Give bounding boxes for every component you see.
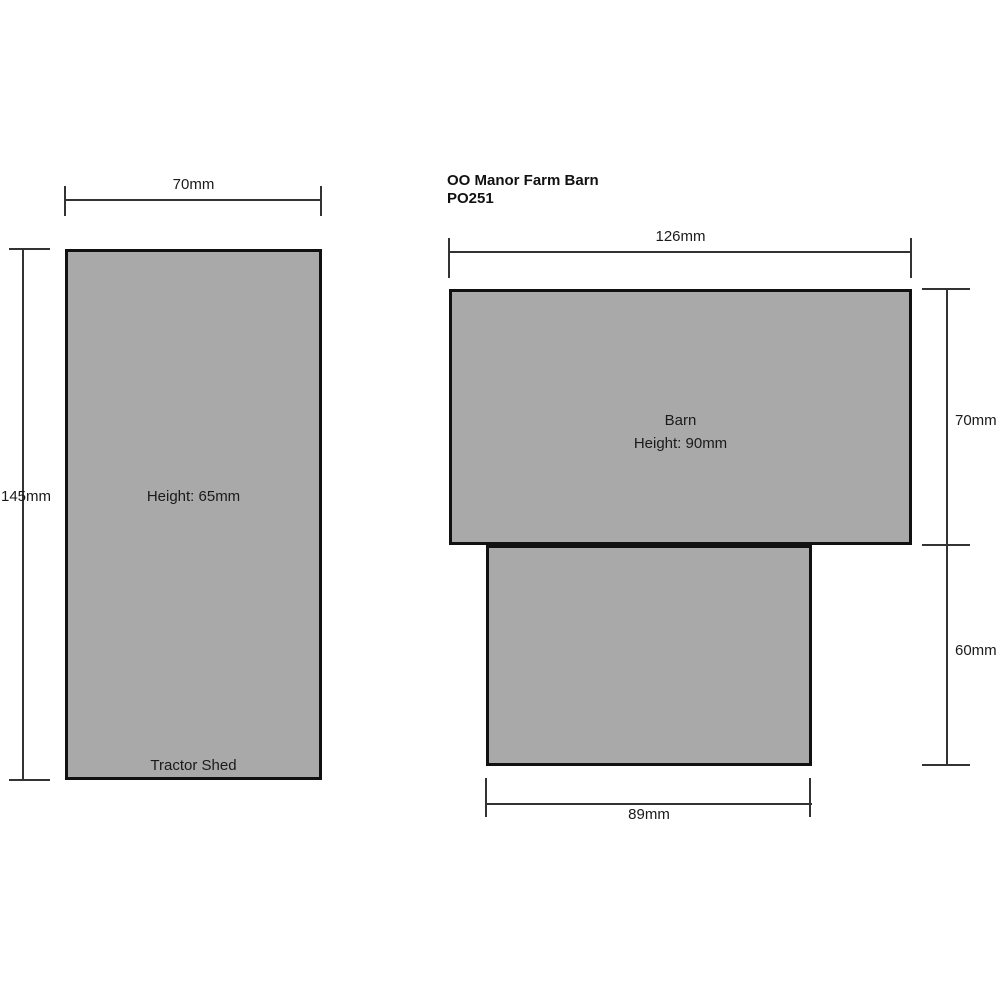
- barn-width-dimension-tick-left: [448, 238, 450, 278]
- barn-height-label: Height: 90mm: [449, 435, 912, 453]
- barn-upper-depth-dimension-label: 70mm: [955, 412, 997, 430]
- product-name: OO Manor Farm Barn: [447, 172, 599, 190]
- tractor-shed-width-dimension-tick-left: [64, 186, 66, 216]
- barn-width-dimension-line: [449, 251, 912, 253]
- barn-lower-depth-dimension-label: 60mm: [955, 642, 997, 660]
- product-code: PO251: [447, 190, 599, 208]
- tractor-shed-length-dimension-line: [22, 249, 24, 781]
- tractor-shed-length-dimension-tick-top: [9, 248, 50, 250]
- barn-name-label: Barn: [449, 412, 912, 430]
- tractor-shed-width-dimension-label: 70mm: [65, 176, 322, 194]
- tractor-shed-length-dimension-tick-bottom: [9, 779, 50, 781]
- tractor-shed-length-dimension-label: 145mm: [0, 488, 52, 506]
- barn-depth-dimension-tick-middle: [922, 544, 970, 546]
- tractor-shed-height-label: Height: 65mm: [65, 488, 322, 506]
- tractor-shed-width-dimension-tick-right: [320, 186, 322, 216]
- barn-lower-footprint: [486, 545, 812, 766]
- barn-depth-dimension-line: [946, 289, 948, 766]
- barn-lower-width-dimension-line: [486, 803, 812, 805]
- barn-depth-dimension-tick-bottom: [922, 764, 970, 766]
- barn-lower-width-dimension-label: 89mm: [486, 806, 812, 824]
- tractor-shed-width-dimension-line: [65, 199, 322, 201]
- barn-width-dimension-label: 126mm: [449, 228, 912, 246]
- barn-width-dimension-tick-right: [910, 238, 912, 278]
- barn-depth-dimension-tick-top: [922, 288, 970, 290]
- tractor-shed-name-label: Tractor Shed: [65, 757, 322, 775]
- tractor-shed-footprint: [65, 249, 322, 780]
- diagram-canvas: OO Manor Farm Barn PO251 70mm 145mm Heig…: [0, 0, 1000, 1000]
- title-block: OO Manor Farm Barn PO251: [447, 172, 599, 208]
